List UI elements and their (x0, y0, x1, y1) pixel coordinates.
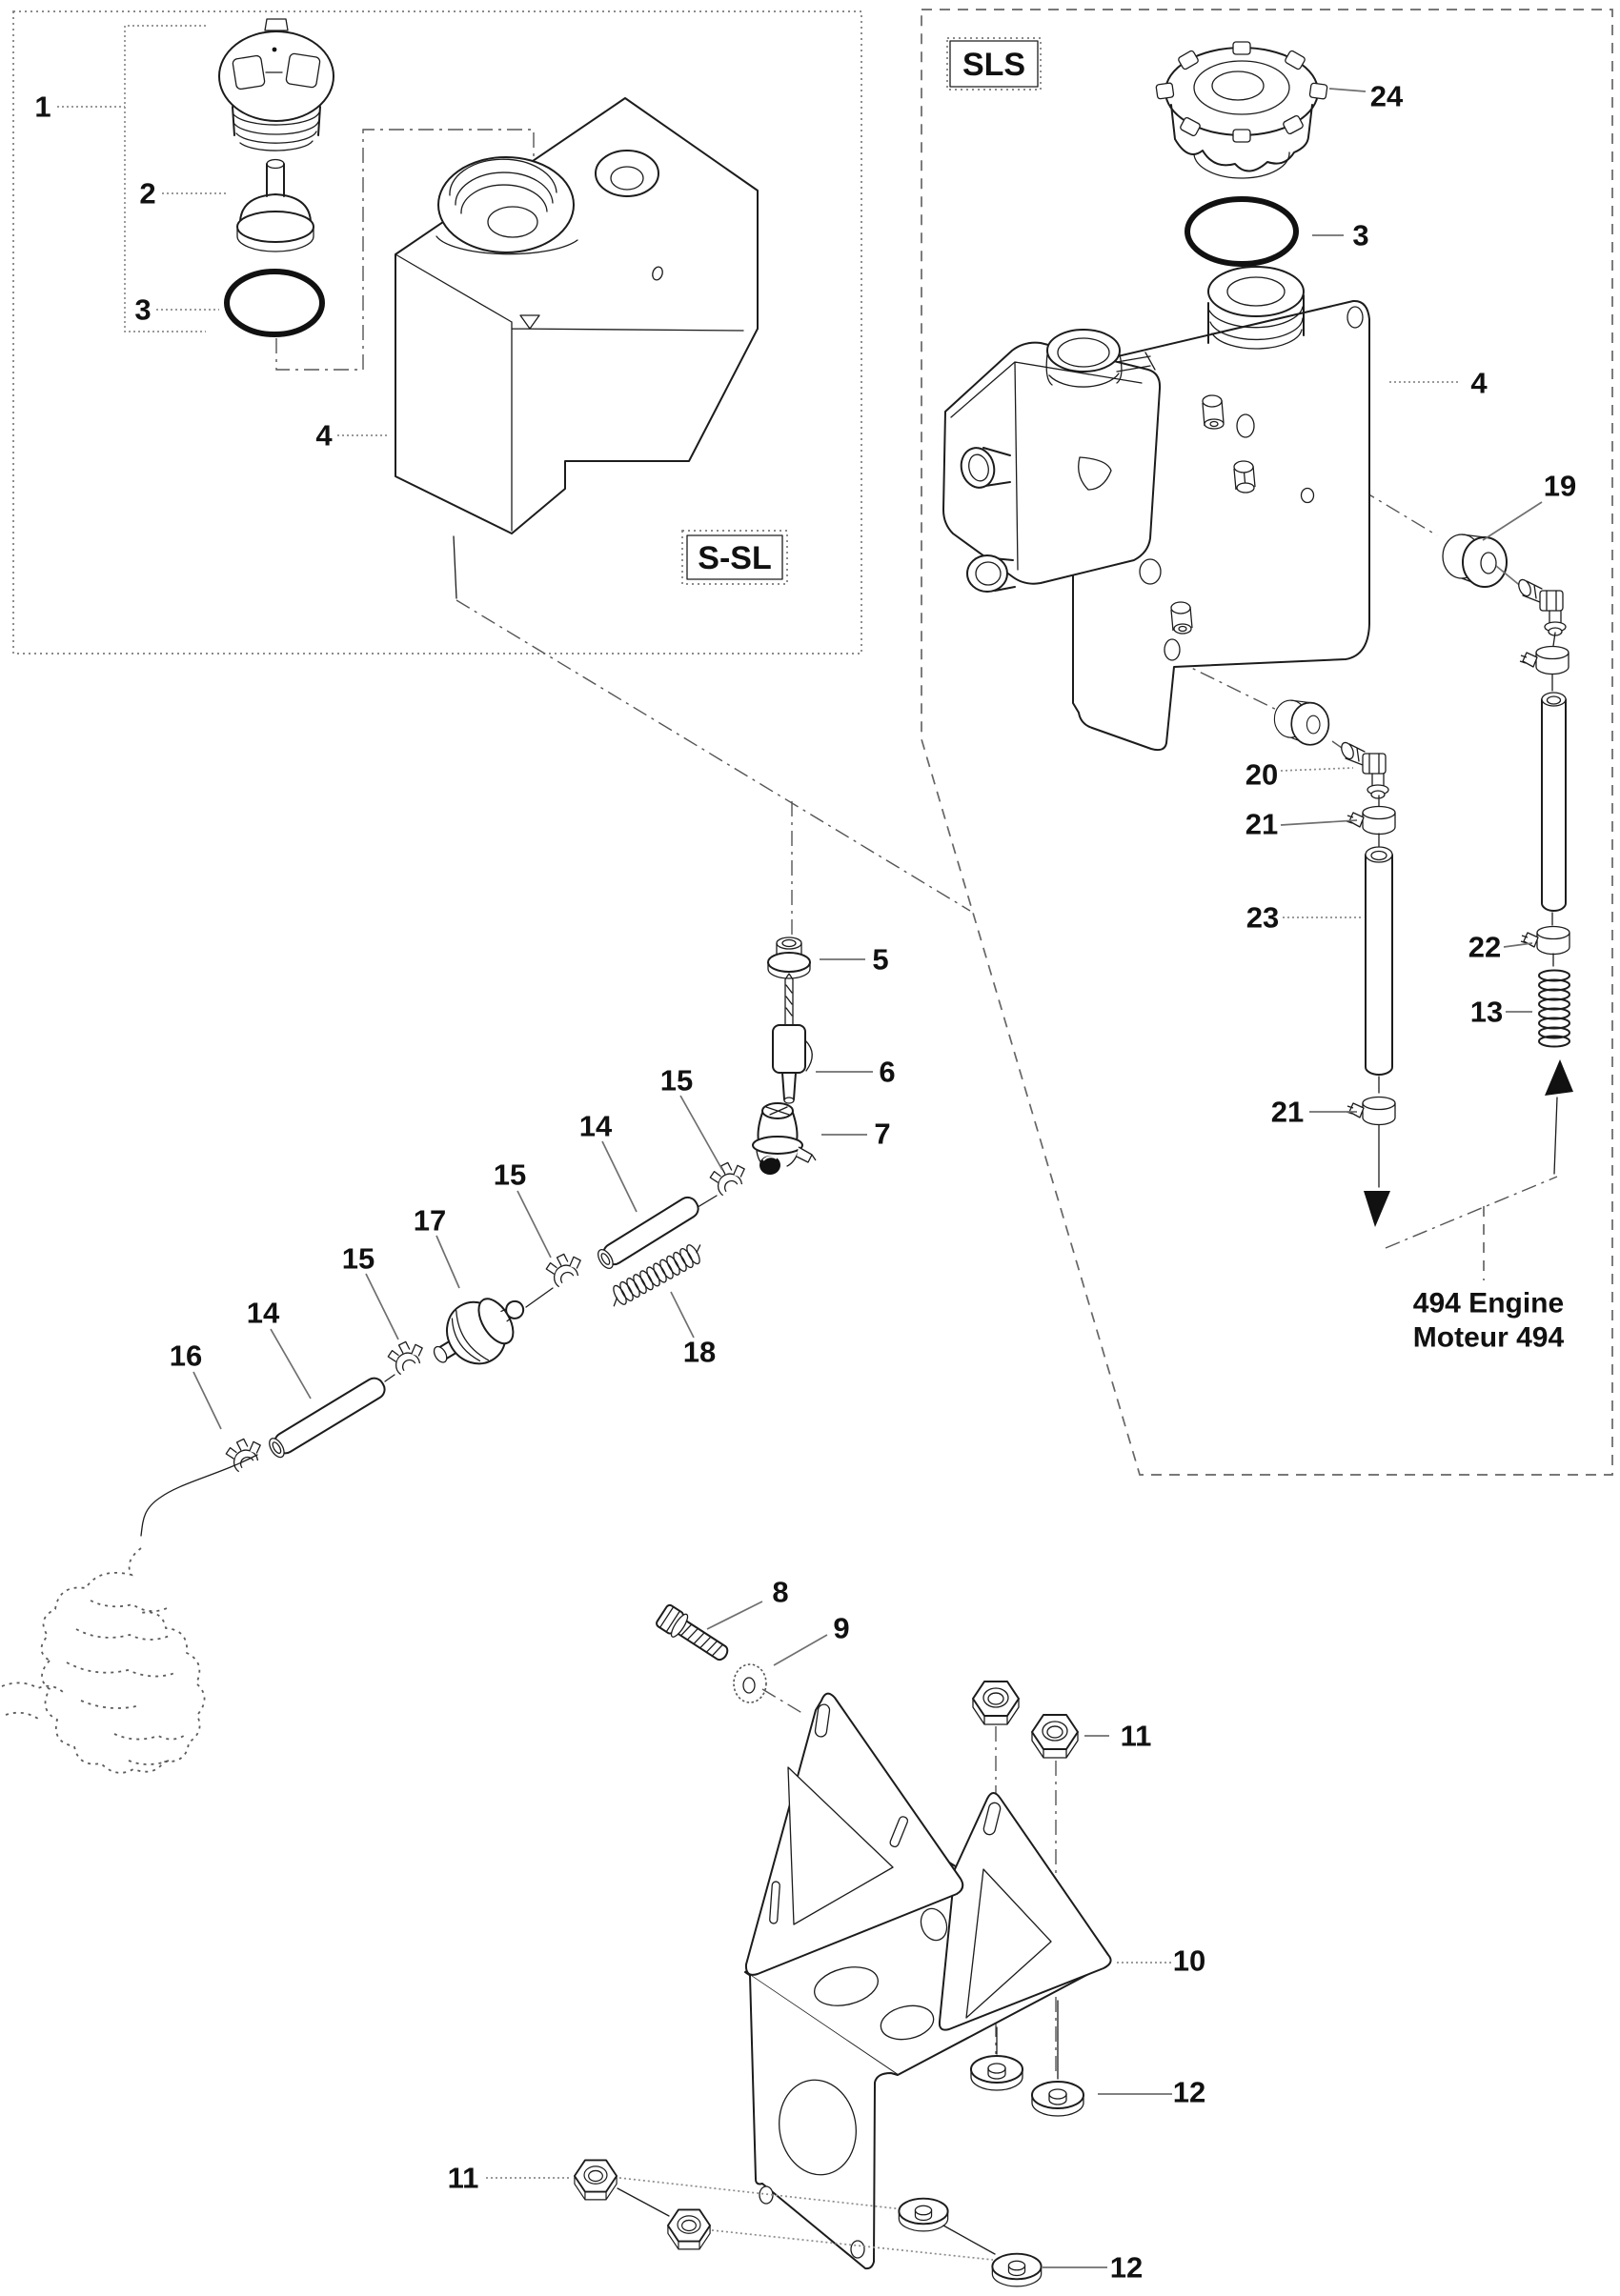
vent-base (237, 211, 314, 242)
leader-24 (1329, 89, 1366, 91)
callout-21-bottom: 21 (1271, 1096, 1304, 1129)
clamp-part21-bottom (1347, 1098, 1395, 1125)
callout-12-bottom: 12 (1110, 2251, 1143, 2285)
clamp-part15-a (708, 1157, 751, 1198)
hose-axis-c (385, 1375, 395, 1381)
leader-9 (774, 1635, 827, 1665)
flow-arrow-left (1364, 1191, 1390, 1227)
callout-15-b: 15 (494, 1158, 526, 1192)
callout-15-c: 15 (342, 1242, 375, 1276)
callout-3-right: 3 (1352, 219, 1368, 252)
grommet-part5 (768, 937, 810, 978)
callout-6: 6 (879, 1056, 895, 1089)
washer-part12-b (1032, 2082, 1083, 2116)
callout-15-a: 15 (660, 1064, 693, 1098)
callout-11-bottom: 11 (448, 2162, 479, 2195)
washer-part12-c (899, 2199, 947, 2231)
clamp-part15-b (544, 1248, 587, 1289)
plate-hole-large (1140, 559, 1161, 584)
clamp-under-elbow19 (1520, 647, 1569, 675)
leader-15-b (517, 1191, 551, 1258)
check-valve-part6 (773, 974, 812, 1103)
cap-grip-cutout-left (233, 55, 266, 90)
cap24-base (1194, 152, 1289, 178)
tank-outline (395, 98, 758, 534)
callout-8: 8 (772, 1576, 788, 1609)
callout-16: 16 (170, 1339, 202, 1373)
hose-part14-a (596, 1194, 702, 1271)
callout-3-left: 3 (134, 293, 151, 327)
nut-part11-a (973, 1682, 1019, 1724)
front-plate-hole-1 (759, 2186, 773, 2204)
cap24-center-hole (1212, 71, 1264, 100)
nut-part11-c (575, 2160, 617, 2199)
callout-23: 23 (1246, 901, 1279, 935)
front-neck-hole (1058, 338, 1109, 367)
callout-21-top: 21 (1245, 808, 1278, 841)
leader-15-a (680, 1096, 722, 1170)
variant-box-s-sl: S-SL (682, 531, 787, 584)
callout-18: 18 (683, 1336, 716, 1369)
callout-7: 7 (874, 1118, 890, 1151)
callout-19: 19 (1544, 470, 1576, 503)
clamp-part22 (1521, 927, 1569, 955)
flow-arrow-right (1545, 1059, 1573, 1096)
front-plate-hole-2 (851, 2241, 864, 2258)
vent-valve-part2 (237, 160, 314, 252)
callout-11-top: 11 (1121, 1720, 1152, 1753)
mounting-bracket-part10 (745, 1694, 1111, 2268)
cap-top-tab (265, 19, 288, 30)
engine-ghost-outline (2, 1548, 205, 1773)
callout-10: 10 (1173, 1944, 1205, 1978)
callout-22: 22 (1468, 931, 1501, 964)
shutoff-valve-part7 (753, 1103, 816, 1175)
washer-part12-d (992, 2254, 1041, 2286)
spring-part13 (1539, 971, 1569, 1047)
callout-17: 17 (414, 1204, 446, 1238)
washer-part9 (734, 1664, 766, 1702)
axis-13 (1554, 1098, 1557, 1174)
leader-1 (57, 26, 206, 332)
callout-12-top: 12 (1173, 2076, 1205, 2109)
sls-region-boundary (921, 10, 1612, 1475)
neck-hole (1227, 277, 1285, 306)
cap-center-dot (273, 48, 277, 52)
tank-small-port-hole (611, 167, 643, 190)
nut-part11-b (1032, 1715, 1078, 1758)
grommet-part20 (1274, 700, 1328, 745)
variant-box-sls: SLS (947, 38, 1041, 90)
callout-2: 2 (139, 177, 155, 211)
cap-grip-cutout-right (286, 53, 321, 89)
nut-part11-d (668, 2209, 710, 2248)
bracket-gusset-right (940, 1793, 1111, 2030)
engine-link-diagonal (1386, 1177, 1557, 1248)
leader-14-b (271, 1329, 311, 1399)
leader-21-top (1281, 820, 1357, 825)
callout-20: 20 (1245, 758, 1278, 792)
tank-to-grommet20-line (1174, 659, 1351, 755)
nut-link-line (618, 2188, 669, 2216)
callout-9: 9 (833, 1612, 849, 1645)
o-ring-right-part3 (1187, 199, 1296, 264)
washer-part12-a (971, 2056, 1023, 2090)
leader-22 (1504, 943, 1532, 947)
washer-link-line (943, 2226, 995, 2254)
oil-tank-s-sl-part4 (395, 98, 758, 534)
sls-cap-part24 (1156, 42, 1327, 178)
leader-16 (193, 1372, 221, 1429)
exploded-diagram-canvas: S-SL SLS 494 Engine Moteur 494 1 2 3 4 2… (0, 0, 1620, 2296)
leader-19 (1483, 502, 1542, 540)
leader-20 (1281, 768, 1353, 771)
callout-4-right: 4 (1470, 367, 1488, 400)
leader-18 (671, 1292, 694, 1338)
leader-15-c (366, 1274, 398, 1339)
callout-4-left: 4 (315, 419, 333, 453)
grommet-part19 (1443, 534, 1507, 587)
clamp-part15-c (386, 1336, 429, 1377)
o-ring-left-part3 (227, 272, 322, 334)
hose-part14-b (267, 1375, 389, 1460)
vent-stem-top (267, 160, 284, 169)
callout-13: 13 (1470, 996, 1503, 1029)
callout-5: 5 (872, 943, 888, 977)
callout-24: 24 (1370, 80, 1404, 113)
bolt-part8 (655, 1603, 733, 1667)
hose-part23 (1366, 847, 1392, 1075)
engine-note-line1: 494 Engine (1413, 1288, 1564, 1319)
fuel-filter-part17 (419, 1279, 537, 1384)
callout-14-a: 14 (579, 1110, 613, 1143)
callout-14-b: 14 (247, 1297, 280, 1330)
variant-label-sls: SLS (962, 47, 1025, 83)
filler-cap-part1 (219, 19, 334, 151)
callout-1: 1 (34, 91, 51, 124)
variant-label-s-sl: S-SL (698, 540, 771, 576)
tank-outlet-stub (454, 536, 456, 598)
leader-8 (707, 1601, 762, 1629)
tank-neck-hole (488, 207, 537, 237)
parts-diagram-page: S-SL SLS 494 Engine Moteur 494 1 2 3 4 2… (0, 0, 1620, 2296)
leader-17 (436, 1236, 459, 1288)
tank-to-sls-link-line (456, 600, 970, 911)
oil-tank-sls-part4 (943, 267, 1369, 750)
washer9-axis (762, 1689, 805, 1715)
leader-14-a (602, 1141, 637, 1212)
tank-neck-rim (438, 157, 574, 252)
hose-part22 (1542, 693, 1566, 911)
hose-axis-b (526, 1288, 553, 1307)
elbow-fitting-20 (1339, 741, 1388, 798)
engine-note-line2: Moteur 494 (1413, 1322, 1565, 1354)
elbow-fitting-19 (1516, 578, 1566, 635)
